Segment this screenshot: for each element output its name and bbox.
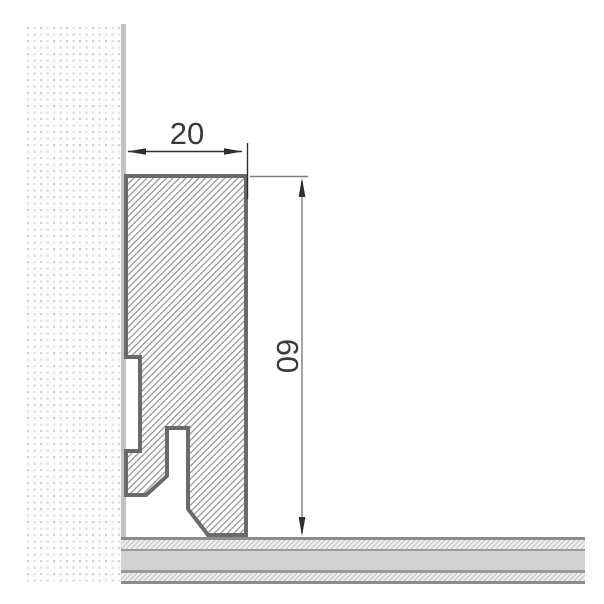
height-dimension: 60: [250, 177, 308, 537]
profile-outline: [126, 176, 246, 535]
floor-divider-line: [121, 549, 585, 551]
floor-core-layer: [121, 551, 585, 570]
floor-bottom-line: [121, 581, 585, 584]
wall: [26, 24, 126, 582]
wall-stipple-area: [26, 24, 122, 582]
floor-divider-line: [121, 570, 585, 573]
floor-top-line: [121, 537, 585, 540]
skirting-profile: [126, 176, 246, 535]
technical-drawing-canvas: 20 60: [0, 0, 604, 604]
skirting-profile-drawing: 20 60: [0, 0, 604, 604]
height-dimension-label: 60: [270, 339, 305, 373]
floor: [121, 537, 585, 584]
arrowhead-right-icon: [224, 148, 243, 155]
arrowhead-up-icon: [299, 178, 306, 197]
width-dimension-label: 20: [170, 116, 204, 151]
arrowhead-left-icon: [127, 148, 146, 155]
arrowhead-down-icon: [299, 517, 306, 536]
floor-upper-hatch-layer: [121, 540, 585, 549]
floor-lower-hatch-layer: [121, 573, 585, 581]
